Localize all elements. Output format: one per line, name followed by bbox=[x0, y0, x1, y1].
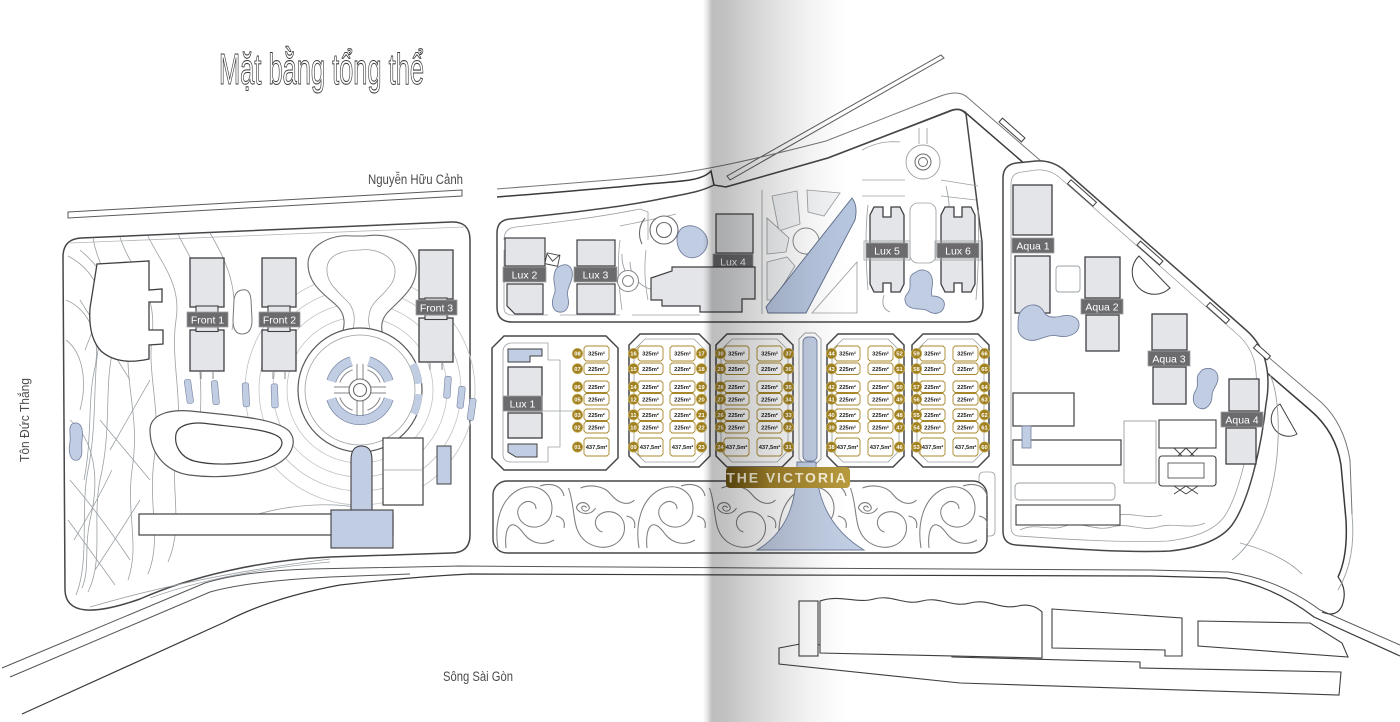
svg-text:Sông Sài Gòn: Sông Sài Gòn bbox=[443, 669, 513, 684]
svg-text:225m²: 225m² bbox=[924, 366, 941, 373]
svg-text:43: 43 bbox=[828, 367, 835, 373]
svg-text:14: 14 bbox=[630, 385, 637, 391]
svg-text:24: 24 bbox=[717, 445, 724, 451]
svg-text:33: 33 bbox=[785, 413, 792, 419]
svg-text:25: 25 bbox=[717, 425, 724, 431]
svg-text:225m²: 225m² bbox=[839, 366, 856, 373]
svg-text:10: 10 bbox=[630, 425, 636, 431]
svg-text:225m²: 225m² bbox=[957, 396, 974, 403]
svg-text:63: 63 bbox=[981, 397, 988, 403]
svg-text:55: 55 bbox=[913, 413, 920, 419]
svg-text:41: 41 bbox=[828, 397, 835, 403]
svg-text:53: 53 bbox=[913, 445, 920, 451]
svg-text:46: 46 bbox=[896, 445, 903, 451]
svg-text:437,5m²: 437,5m² bbox=[640, 444, 662, 451]
svg-text:325m²: 325m² bbox=[839, 351, 856, 358]
svg-text:225m²: 225m² bbox=[957, 384, 974, 391]
svg-text:Aqua 3: Aqua 3 bbox=[1152, 353, 1185, 365]
svg-text:57: 57 bbox=[913, 385, 919, 391]
svg-text:26: 26 bbox=[717, 413, 724, 419]
svg-text:66: 66 bbox=[981, 352, 988, 358]
svg-text:30: 30 bbox=[717, 352, 723, 358]
svg-text:225m²: 225m² bbox=[642, 396, 659, 403]
svg-text:31: 31 bbox=[785, 445, 792, 451]
svg-text:225m²: 225m² bbox=[761, 424, 778, 431]
svg-text:39: 39 bbox=[828, 425, 835, 431]
svg-text:56: 56 bbox=[913, 397, 920, 403]
svg-text:44: 44 bbox=[828, 352, 835, 358]
svg-text:18: 18 bbox=[698, 367, 705, 373]
svg-text:62: 62 bbox=[981, 413, 987, 419]
svg-text:225m²: 225m² bbox=[674, 366, 691, 373]
svg-text:225m²: 225m² bbox=[588, 384, 605, 391]
svg-text:225m²: 225m² bbox=[839, 424, 856, 431]
svg-text:01: 01 bbox=[574, 445, 581, 451]
svg-text:225m²: 225m² bbox=[674, 424, 691, 431]
svg-text:05: 05 bbox=[574, 397, 581, 403]
svg-text:325m²: 325m² bbox=[728, 351, 745, 358]
svg-text:225m²: 225m² bbox=[642, 412, 659, 419]
svg-text:65: 65 bbox=[981, 367, 988, 373]
svg-text:06: 06 bbox=[574, 385, 581, 391]
svg-text:225m²: 225m² bbox=[674, 384, 691, 391]
svg-text:225m²: 225m² bbox=[728, 412, 745, 419]
svg-text:437,5m²: 437,5m² bbox=[922, 444, 944, 451]
svg-text:Aqua 4: Aqua 4 bbox=[1225, 414, 1258, 426]
svg-text:15: 15 bbox=[630, 367, 637, 373]
svg-text:Tôn Đức Thắng: Tôn Đức Thắng bbox=[17, 378, 32, 462]
svg-text:225m²: 225m² bbox=[839, 396, 856, 403]
svg-text:437,5m²: 437,5m² bbox=[586, 444, 608, 451]
svg-text:225m²: 225m² bbox=[588, 396, 605, 403]
svg-text:325m²: 325m² bbox=[588, 351, 605, 358]
svg-text:02: 02 bbox=[574, 425, 580, 431]
svg-text:Lux 3: Lux 3 bbox=[583, 269, 609, 281]
svg-text:437,5m²: 437,5m² bbox=[672, 444, 694, 451]
svg-text:225m²: 225m² bbox=[872, 396, 889, 403]
svg-text:225m²: 225m² bbox=[728, 424, 745, 431]
svg-text:325m²: 325m² bbox=[761, 351, 778, 358]
svg-text:32: 32 bbox=[785, 425, 791, 431]
svg-text:225m²: 225m² bbox=[642, 424, 659, 431]
svg-text:60: 60 bbox=[981, 445, 987, 451]
svg-text:225m²: 225m² bbox=[728, 396, 745, 403]
svg-text:325m²: 325m² bbox=[957, 351, 974, 358]
svg-text:Aqua 1: Aqua 1 bbox=[1016, 240, 1049, 252]
svg-text:19: 19 bbox=[698, 385, 705, 391]
svg-text:64: 64 bbox=[981, 385, 988, 391]
svg-text:20: 20 bbox=[698, 397, 704, 403]
svg-text:225m²: 225m² bbox=[761, 366, 778, 373]
svg-text:Aqua 2: Aqua 2 bbox=[1085, 301, 1118, 313]
svg-text:225m²: 225m² bbox=[872, 366, 889, 373]
svg-text:325m²: 325m² bbox=[674, 351, 691, 358]
svg-text:225m²: 225m² bbox=[924, 384, 941, 391]
svg-text:325m²: 325m² bbox=[642, 351, 659, 358]
svg-text:08: 08 bbox=[574, 352, 581, 358]
svg-text:16: 16 bbox=[630, 352, 637, 358]
svg-text:225m²: 225m² bbox=[761, 396, 778, 403]
svg-text:21: 21 bbox=[698, 413, 705, 419]
svg-text:27: 27 bbox=[717, 397, 723, 403]
svg-text:225m²: 225m² bbox=[872, 412, 889, 419]
svg-text:29: 29 bbox=[717, 367, 724, 373]
svg-text:225m²: 225m² bbox=[642, 384, 659, 391]
svg-text:437,5m²: 437,5m² bbox=[870, 444, 892, 451]
svg-text:36: 36 bbox=[785, 367, 792, 373]
svg-text:37: 37 bbox=[785, 352, 791, 358]
svg-text:325m²: 325m² bbox=[872, 351, 889, 358]
svg-text:225m²: 225m² bbox=[957, 412, 974, 419]
svg-text:325m²: 325m² bbox=[924, 351, 941, 358]
svg-text:Mặt bằng tổng thể: Mặt bằng tổng thể bbox=[219, 45, 424, 94]
svg-text:225m²: 225m² bbox=[761, 384, 778, 391]
svg-text:59: 59 bbox=[913, 352, 920, 358]
svg-text:54: 54 bbox=[913, 425, 920, 431]
svg-text:35: 35 bbox=[785, 385, 792, 391]
svg-text:437,5m²: 437,5m² bbox=[759, 444, 781, 451]
svg-text:225m²: 225m² bbox=[957, 424, 974, 431]
svg-text:437,5m²: 437,5m² bbox=[837, 444, 859, 451]
svg-text:28: 28 bbox=[717, 385, 724, 391]
svg-text:225m²: 225m² bbox=[957, 366, 974, 373]
svg-text:225m²: 225m² bbox=[924, 412, 941, 419]
svg-text:437,5m²: 437,5m² bbox=[726, 444, 748, 451]
svg-text:THE VICTORIA: THE VICTORIA bbox=[726, 469, 847, 485]
svg-text:225m²: 225m² bbox=[839, 384, 856, 391]
svg-text:225m²: 225m² bbox=[674, 412, 691, 419]
svg-text:225m²: 225m² bbox=[924, 396, 941, 403]
svg-text:11: 11 bbox=[630, 413, 637, 419]
svg-text:225m²: 225m² bbox=[872, 384, 889, 391]
svg-text:49: 49 bbox=[896, 397, 903, 403]
svg-text:07: 07 bbox=[574, 367, 580, 373]
svg-text:Lux 6: Lux 6 bbox=[945, 245, 971, 257]
svg-text:Front 2: Front 2 bbox=[263, 314, 296, 326]
svg-text:Lux 2: Lux 2 bbox=[512, 269, 538, 281]
svg-text:Front 3: Front 3 bbox=[420, 302, 453, 314]
svg-text:Lux 5: Lux 5 bbox=[874, 245, 900, 257]
svg-text:38: 38 bbox=[828, 445, 835, 451]
svg-text:Lux 1: Lux 1 bbox=[510, 398, 536, 410]
svg-text:Nguyễn Hữu Cảnh: Nguyễn Hữu Cảnh bbox=[368, 172, 463, 187]
svg-text:437,5m²: 437,5m² bbox=[955, 444, 977, 451]
svg-text:34: 34 bbox=[785, 397, 792, 403]
svg-text:52: 52 bbox=[896, 352, 902, 358]
svg-text:225m²: 225m² bbox=[728, 384, 745, 391]
svg-text:61: 61 bbox=[981, 425, 988, 431]
svg-text:225m²: 225m² bbox=[728, 366, 745, 373]
svg-text:17: 17 bbox=[698, 352, 704, 358]
svg-text:225m²: 225m² bbox=[924, 424, 941, 431]
svg-text:Front 1: Front 1 bbox=[191, 314, 224, 326]
svg-text:03: 03 bbox=[574, 413, 581, 419]
svg-text:47: 47 bbox=[896, 425, 902, 431]
svg-text:225m²: 225m² bbox=[642, 366, 659, 373]
svg-text:23: 23 bbox=[698, 445, 705, 451]
svg-text:51: 51 bbox=[896, 367, 903, 373]
svg-text:42: 42 bbox=[828, 385, 834, 391]
svg-text:09: 09 bbox=[630, 445, 637, 451]
svg-text:58: 58 bbox=[913, 367, 920, 373]
svg-text:50: 50 bbox=[896, 385, 902, 391]
svg-text:225m²: 225m² bbox=[588, 366, 605, 373]
svg-text:225m²: 225m² bbox=[872, 424, 889, 431]
svg-text:22: 22 bbox=[698, 425, 704, 431]
svg-text:40: 40 bbox=[828, 413, 834, 419]
svg-text:225m²: 225m² bbox=[839, 412, 856, 419]
svg-text:225m²: 225m² bbox=[588, 412, 605, 419]
svg-text:225m²: 225m² bbox=[761, 412, 778, 419]
svg-text:225m²: 225m² bbox=[588, 424, 605, 431]
svg-text:225m²: 225m² bbox=[674, 396, 691, 403]
svg-text:12: 12 bbox=[630, 397, 636, 403]
svg-text:48: 48 bbox=[896, 413, 903, 419]
